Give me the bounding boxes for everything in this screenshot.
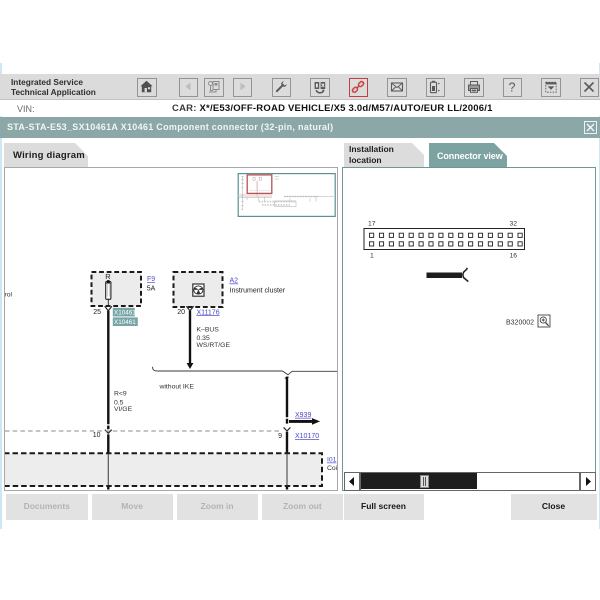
svg-text:WS/RT/GE: WS/RT/GE — [197, 342, 231, 349]
svg-text:Coi: Coi — [327, 465, 337, 472]
svg-text:X939: X939 — [295, 412, 311, 419]
svg-text:9: 9 — [278, 433, 282, 440]
svg-text:F9: F9 — [147, 276, 155, 283]
svg-text:X11176: X11176 — [197, 309, 220, 316]
svg-text:rol: rol — [5, 292, 13, 299]
svg-text:?: ? — [509, 81, 516, 95]
svg-text:1: 1 — [370, 253, 374, 260]
svg-text:32: 32 — [509, 221, 517, 228]
svg-text:17: 17 — [368, 221, 376, 228]
svg-text:K–BUS: K–BUS — [197, 327, 220, 334]
svg-text:B320002: B320002 — [506, 320, 534, 327]
svg-text:without IKE: without IKE — [159, 383, 195, 390]
svg-text:0.35: 0.35 — [197, 335, 210, 342]
svg-text:5A: 5A — [147, 285, 156, 292]
svg-text:A2: A2 — [230, 278, 239, 285]
svg-text:25: 25 — [93, 309, 101, 316]
svg-text:10: 10 — [93, 432, 101, 439]
svg-text:20: 20 — [177, 309, 185, 316]
svg-text:I01: I01 — [327, 457, 337, 464]
svg-text:X10461: X10461 — [114, 319, 136, 326]
svg-text:X10170: X10170 — [295, 433, 319, 440]
svg-text:R<9: R<9 — [114, 391, 127, 398]
svg-text:16: 16 — [509, 253, 517, 260]
svg-text:X10461: X10461 — [114, 310, 136, 317]
svg-text:R: R — [105, 272, 111, 281]
svg-text:Instrument cluster: Instrument cluster — [230, 288, 286, 295]
svg-text:VI/GE: VI/GE — [114, 406, 133, 413]
